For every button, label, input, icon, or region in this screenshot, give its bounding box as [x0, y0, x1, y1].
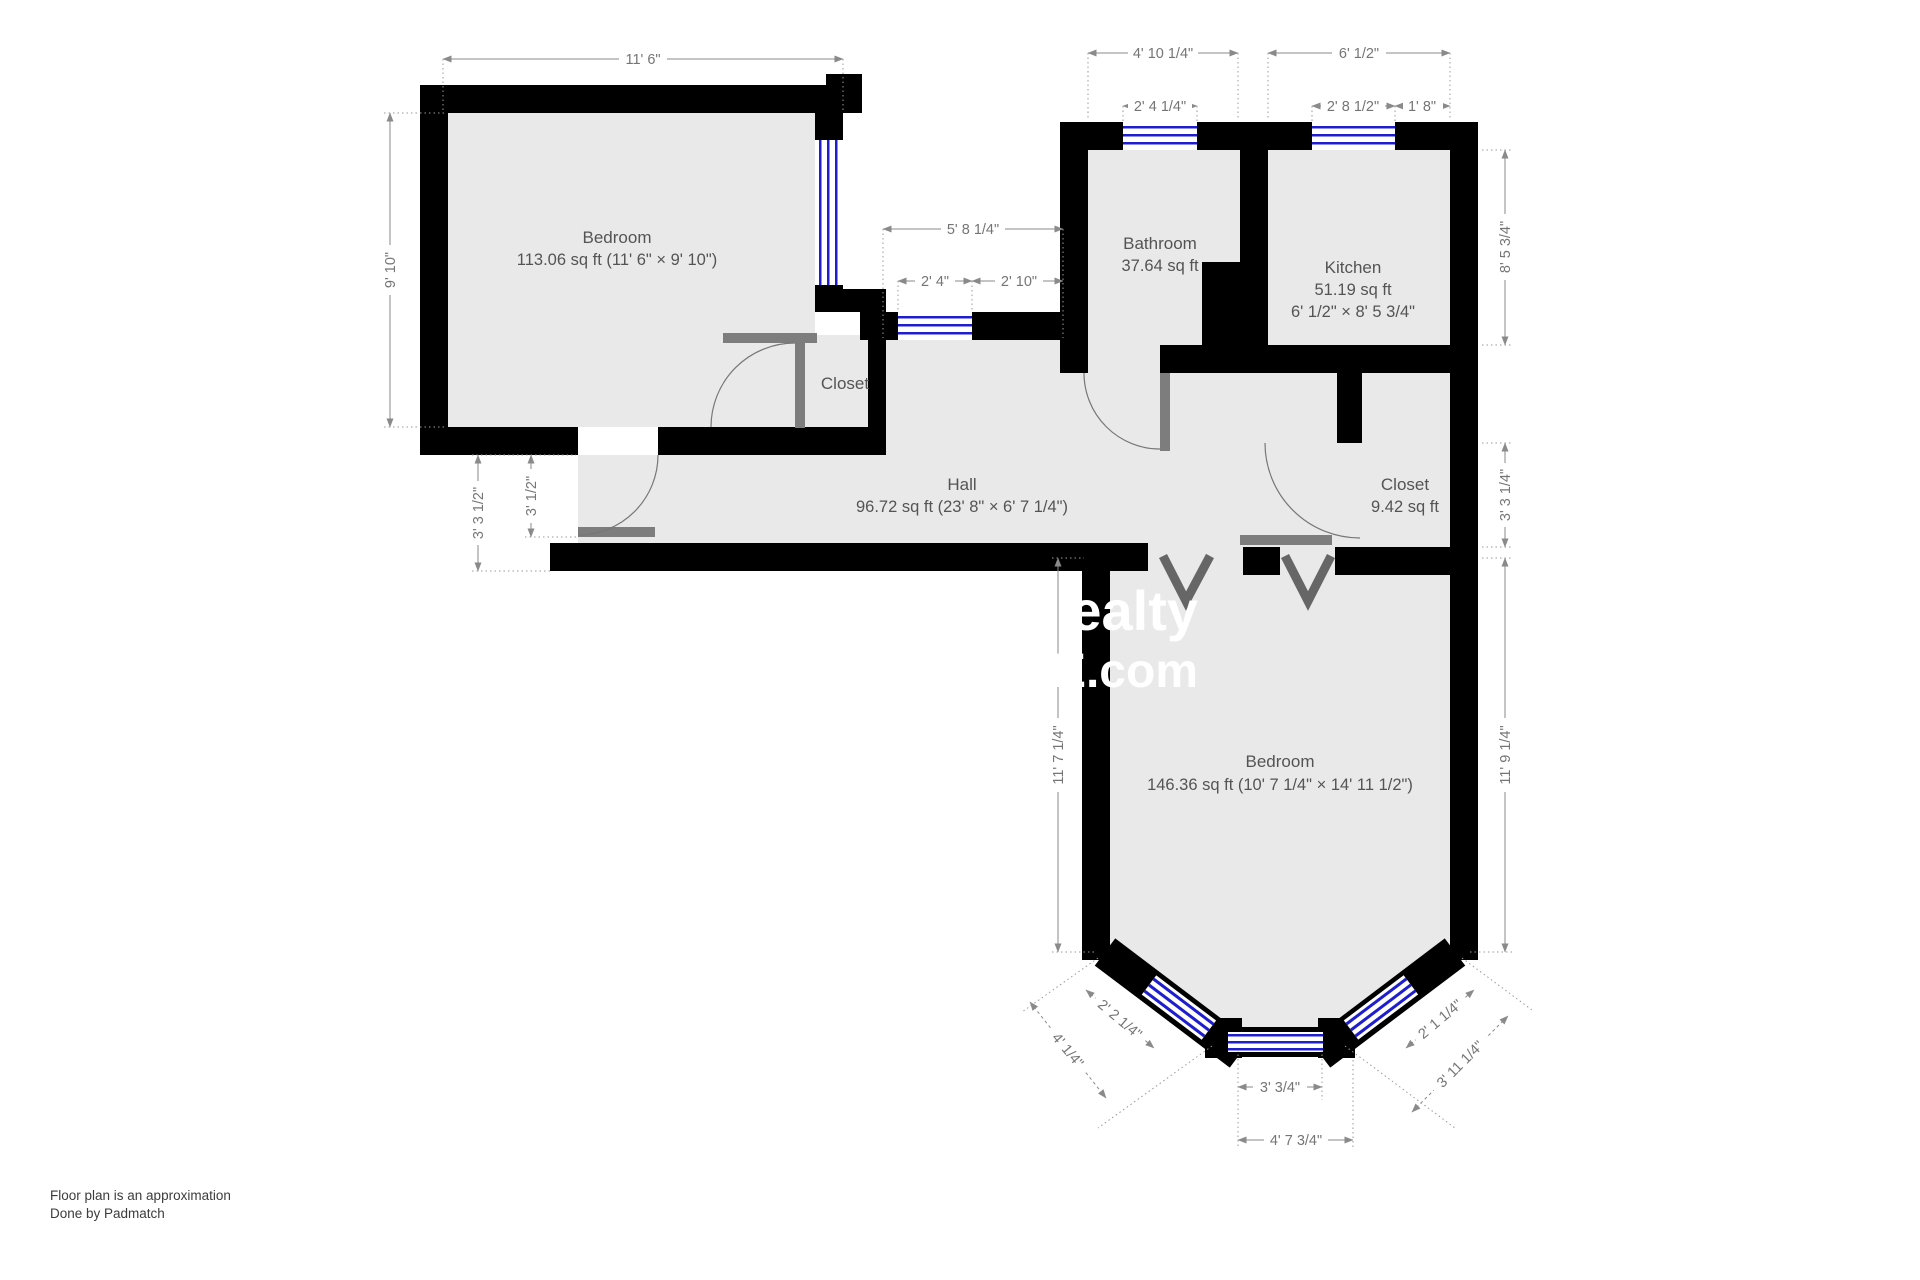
dim-bathroom-window: 2' 4 1/4" [1123, 98, 1197, 115]
watermark-line1: ealty [1070, 579, 1198, 642]
svg-text:3' 11 1/4": 3' 11 1/4" [1434, 1038, 1487, 1091]
svg-text:11' 7 1/4": 11' 7 1/4" [1051, 725, 1067, 784]
wall-segment [815, 289, 886, 312]
dim-bedroom-top-height: 9' 10" [382, 113, 399, 427]
watermark: ealty E.com [1054, 579, 1198, 698]
svg-text:2' 4": 2' 4" [921, 274, 949, 290]
wall-segment [1335, 547, 1478, 575]
dim-kitchen-height: 8' 5 3/4" [1497, 150, 1514, 345]
wall-segment [1450, 122, 1478, 960]
svg-text:2' 1 1/4": 2' 1 1/4" [1415, 997, 1465, 1043]
wall-segment [1240, 122, 1268, 345]
footer-credit: Done by Padmatch [50, 1206, 165, 1221]
window-kitchen [1312, 124, 1395, 148]
window-hall-alcove [898, 314, 972, 338]
window-bathroom [1123, 124, 1197, 148]
door-leaf-closet-top [723, 333, 817, 343]
wall-segment [815, 113, 843, 140]
svg-text:4' 7 3/4": 4' 7 3/4" [1270, 1133, 1322, 1149]
svg-text:2' 2 1/4": 2' 2 1/4" [1094, 997, 1144, 1043]
svg-text:2' 4 1/4": 2' 4 1/4" [1134, 99, 1186, 115]
bathroom-area: 37.64 sq ft [1121, 257, 1198, 275]
svg-text:3' 1/2": 3' 1/2" [524, 476, 540, 516]
wall-segment [1197, 122, 1240, 150]
floor-plan-page: 11' 6" 9' 10" 4' 10 1/4" 2' 4 1/4" 6' 1/… [0, 0, 1920, 1280]
bedroom-top-floor [448, 113, 815, 427]
hall-alcove-floor [886, 340, 1060, 455]
svg-text:8' 5 3/4": 8' 5 3/4" [1498, 221, 1514, 273]
wall-segment [1243, 547, 1280, 575]
svg-text:11' 9 1/4": 11' 9 1/4" [1498, 725, 1514, 784]
wall-segment [860, 312, 898, 340]
bedroom-bottom-area: 146.36 sq ft (10' 7 1/4" × 14' 11 1/2") [1147, 776, 1413, 794]
closet-right-label: Closet [1381, 475, 1429, 494]
dim-hall-alcove-window: 2' 4" [898, 273, 972, 290]
kitchen-dims: 6' 1/2" × 8' 5 3/4" [1291, 303, 1415, 321]
wall-segment [1268, 122, 1312, 150]
wall-segment [1240, 345, 1478, 373]
hall-right-floor [1060, 373, 1450, 455]
wall-segment [972, 312, 1063, 340]
footer: Floor plan is an approximation Done by P… [50, 1188, 231, 1221]
dim-hall-alcove-width: 5' 8 1/4" [883, 221, 1063, 238]
door-leaf-bedroom-top [795, 343, 805, 428]
wall-segment [658, 427, 886, 455]
wall-segment [826, 74, 862, 113]
dim-bedroom-bottom-right-height: 11' 9 1/4" [1497, 558, 1514, 952]
closet-right-area: 9.42 sq ft [1371, 498, 1439, 516]
svg-text:3' 3 1/2": 3' 3 1/2" [471, 487, 487, 539]
dim-hall-alcove-rest: 2' 10" [972, 273, 1063, 290]
svg-text:9' 10": 9' 10" [383, 252, 399, 288]
kitchen-area: 51.19 sq ft [1314, 281, 1391, 299]
door-leaf-closet-right [1240, 535, 1332, 545]
dim-hall-left-outer: 3' 3 1/2" [470, 455, 487, 571]
wall-segment [1337, 373, 1362, 443]
svg-text:2' 10": 2' 10" [1001, 274, 1037, 290]
dim-bathroom-width: 4' 10 1/4" [1088, 45, 1238, 62]
svg-text:3' 3 1/4": 3' 3 1/4" [1498, 469, 1514, 521]
bathroom-label: Bathroom [1123, 234, 1197, 253]
watermark-line2: E.com [1054, 645, 1198, 698]
bedroom-bottom-label: Bedroom [1246, 752, 1315, 771]
wall-segment [420, 85, 448, 455]
wall-segment [1060, 122, 1123, 150]
wall-segment [420, 427, 578, 455]
door-leaf-hall-entry [578, 527, 655, 537]
svg-text:2' 8 1/2": 2' 8 1/2" [1327, 99, 1379, 115]
dim-kitchen-window: 2' 8 1/2" [1312, 98, 1395, 115]
svg-text:6' 1/2": 6' 1/2" [1339, 46, 1379, 62]
dim-bay-bottom-window: 3' 3/4" [1238, 1079, 1322, 1096]
dim-bedroom-bottom-left-height: 11' 7 1/4" [1050, 558, 1067, 952]
floor-plan-drawing: 11' 6" 9' 10" 4' 10 1/4" 2' 4 1/4" 6' 1/… [0, 0, 1920, 1280]
svg-text:1' 8": 1' 8" [1408, 99, 1436, 115]
dim-closet-right-height: 3' 3 1/4" [1497, 443, 1514, 547]
wall-segment [1060, 122, 1088, 373]
window-bay-bottom [1228, 1032, 1323, 1052]
svg-text:5' 8 1/4": 5' 8 1/4" [947, 222, 999, 238]
dim-hall-left-inner: 3' 1/2" [523, 455, 540, 537]
svg-text:4' 1/4": 4' 1/4" [1048, 1030, 1086, 1071]
footer-disclaimer: Floor plan is an approximation [50, 1188, 231, 1203]
window-bedroom-top [817, 140, 841, 285]
svg-text:3' 3/4": 3' 3/4" [1260, 1080, 1300, 1096]
dim-kitchen-corner: 1' 8" [1395, 98, 1450, 115]
wall-segment [1202, 262, 1240, 345]
dim-kitchen-width: 6' 1/2" [1268, 45, 1450, 62]
bedroom-top-label: Bedroom [583, 228, 652, 247]
svg-text:4' 10 1/4": 4' 10 1/4" [1133, 46, 1193, 62]
svg-text:11' 6": 11' 6" [625, 52, 660, 68]
dim-bay-left-wall: 4' 1/4" [1030, 1002, 1106, 1098]
hall-area: 96.72 sq ft (23' 8" × 6' 7 1/4") [856, 498, 1068, 516]
wall-segment [420, 85, 843, 113]
door-leaf-bathroom [1160, 373, 1170, 451]
kitchen-label: Kitchen [1325, 258, 1382, 277]
bedroom-top-area: 113.06 sq ft (11' 6" × 9' 10") [517, 251, 717, 269]
dim-bedroom-top-width: 11' 6" [443, 51, 843, 68]
wall-segment [1160, 345, 1240, 373]
hall-label: Hall [947, 475, 976, 494]
closet-hall-label: Closet [821, 374, 869, 393]
bathroom-doorway-floor [1088, 345, 1160, 373]
dim-bay-bottom-width: 4' 7 3/4" [1238, 1132, 1353, 1149]
